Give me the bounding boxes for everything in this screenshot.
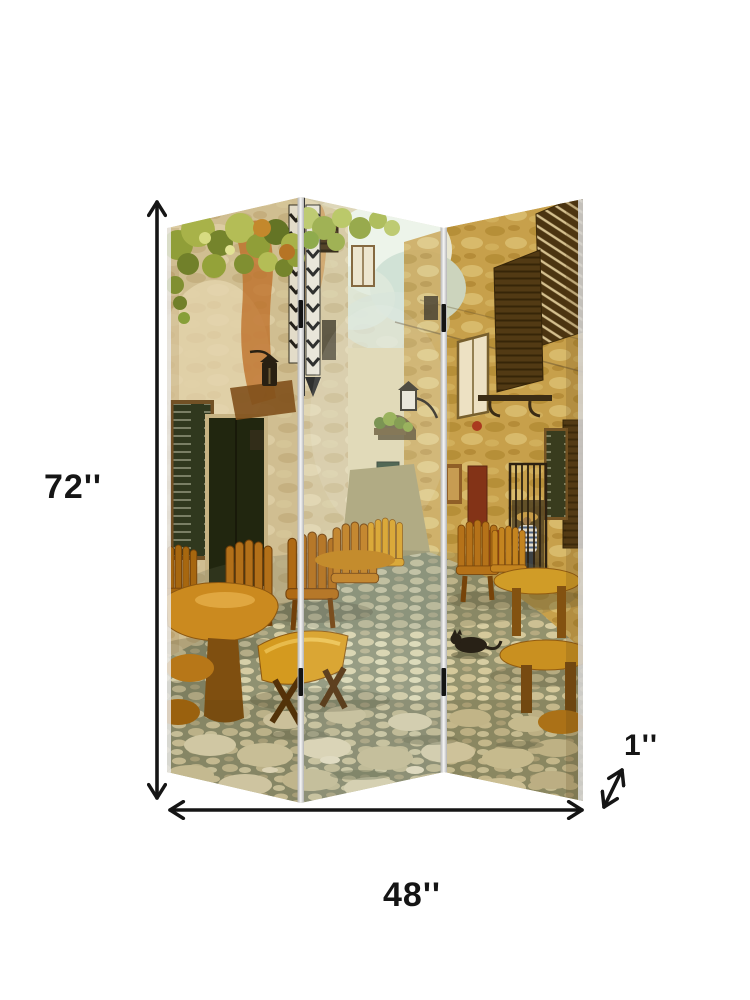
fold-strip-1	[298, 195, 305, 805]
panel-edge-left	[167, 226, 171, 774]
product-dimension-diagram: 72'' 48'' 1''	[0, 0, 750, 1000]
hinge	[442, 668, 447, 696]
hinge	[442, 304, 447, 332]
hinge	[299, 668, 304, 696]
height-dimension-label: 72''	[23, 470, 123, 504]
depth-dimension-label: 1''	[601, 731, 681, 761]
hinge	[299, 300, 304, 328]
screen-artwork	[150, 194, 602, 805]
width-dimension-label: 48''	[362, 878, 462, 912]
panel-edge-right	[578, 197, 584, 803]
depth-dimension-arrow	[604, 770, 622, 807]
